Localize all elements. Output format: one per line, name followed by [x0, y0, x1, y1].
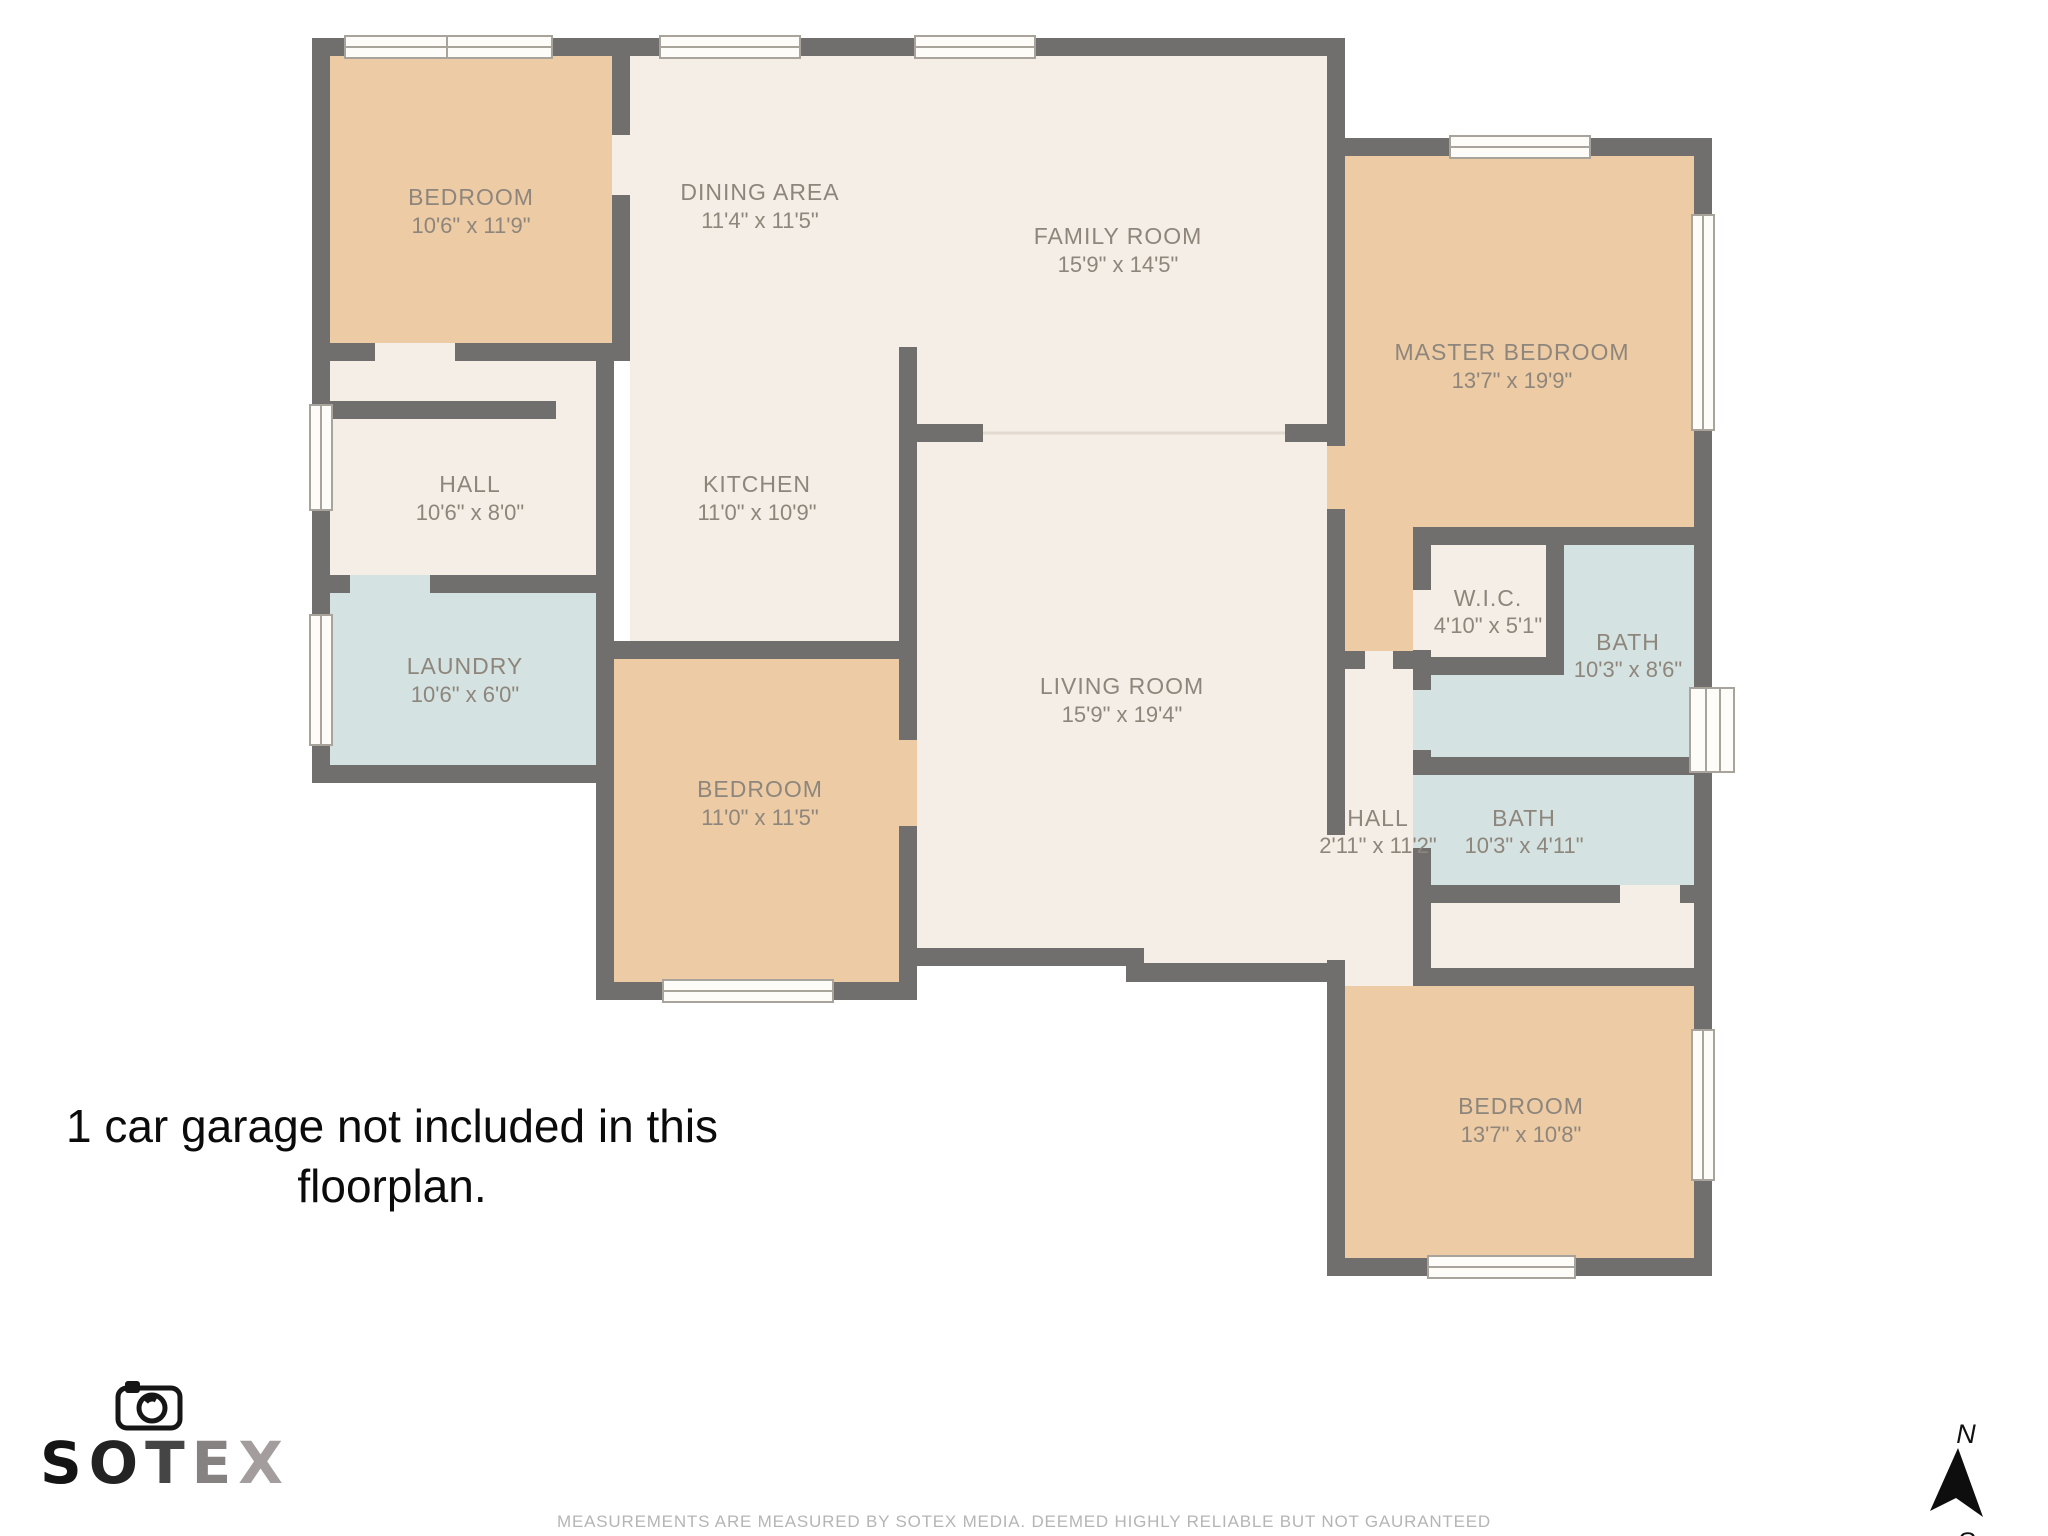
logo-wordmark: SOTEX [40, 1429, 290, 1497]
room-label: HALL [1347, 805, 1409, 831]
room-dims: 11'0" x 10'9" [697, 500, 816, 525]
logo-letter: X [238, 1429, 290, 1497]
window-icon [345, 36, 552, 58]
room-dims: 10'6" x 6'0" [411, 682, 519, 707]
room-label: BEDROOM [697, 776, 823, 802]
garage-note-line1: 1 car garage not included in this [66, 1100, 718, 1152]
garage-note-line2: floorplan. [297, 1160, 486, 1212]
room-dims: 11'4" x 11'5" [701, 208, 818, 233]
room-dims: 10'3" x 4'11" [1464, 833, 1583, 858]
south-label: S [1957, 1527, 1975, 1536]
window-icon [1690, 688, 1734, 772]
north-arrow-icon: N S [1930, 1419, 1983, 1536]
room-dining-kitchen [630, 56, 917, 641]
room-master-bedroom-column [1345, 527, 1413, 651]
logo-letter: T [145, 1429, 192, 1497]
room-dims: 13'7" x 10'8" [1461, 1122, 1582, 1147]
room-label: BEDROOM [408, 184, 534, 210]
room-dims: 4'10" x 5'1" [1434, 613, 1542, 638]
room-dims: 10'6" x 8'0" [416, 500, 524, 525]
north-label: N [1956, 1419, 1976, 1449]
disclaimer-text: MEASUREMENTS ARE MEASURED BY SOTEX MEDIA… [557, 1512, 1491, 1531]
room-family-living [917, 56, 1327, 948]
floorplan-canvas: BEDROOM 10'6" x 11'9" DINING AREA 11'4" … [0, 0, 2048, 1536]
room-bath-upper-ell [1431, 675, 1694, 757]
room-label: W.I.C. [1454, 585, 1523, 611]
room-label: BATH [1492, 805, 1556, 831]
room-dims: 15'9" x 19'4" [1062, 702, 1183, 727]
room-dims: 10'3" x 8'6" [1574, 657, 1682, 682]
window-icon [915, 36, 1035, 58]
logo-letter: O [89, 1429, 145, 1497]
room-label: BEDROOM [1458, 1093, 1584, 1119]
room-label: LAUNDRY [407, 653, 524, 679]
window-icon [1450, 136, 1590, 158]
room-laundry [330, 593, 596, 765]
room-label: BATH [1596, 629, 1660, 655]
room-dims: 2'11" x 11'2" [1319, 833, 1436, 858]
window-icon [310, 405, 332, 510]
room-dims: 11'0" x 11'5" [701, 805, 818, 830]
room-label: LIVING ROOM [1040, 673, 1204, 699]
room-landing [1431, 903, 1694, 968]
room-dims: 15'9" x 14'5" [1058, 252, 1179, 277]
camera-icon [118, 1381, 180, 1428]
room-living-edge [1126, 948, 1327, 963]
garage-note: 1 car garage not included in this floorp… [66, 1100, 718, 1212]
window-icon [310, 615, 332, 745]
logo-letter: S [40, 1429, 89, 1497]
window-icon [1692, 1030, 1714, 1180]
room-label: FAMILY ROOM [1034, 223, 1203, 249]
room-label: DINING AREA [680, 179, 839, 205]
room-label: KITCHEN [703, 471, 811, 497]
room-dims: 10'6" x 11'9" [411, 213, 530, 238]
window-icon [1428, 1256, 1575, 1278]
room-bath-lower [1431, 775, 1694, 885]
window-icon [660, 36, 800, 58]
window-icon [1692, 215, 1714, 430]
room-label: MASTER BEDROOM [1394, 339, 1629, 365]
logo-letter: E [192, 1429, 239, 1497]
north-arrow-glyph [1930, 1448, 1983, 1517]
sotex-logo: SOTEX [40, 1381, 290, 1497]
room-hall-left [330, 361, 596, 575]
window-icon [663, 980, 833, 1002]
room-label: HALL [439, 471, 501, 497]
room-dims: 13'7" x 19'9" [1452, 368, 1573, 393]
